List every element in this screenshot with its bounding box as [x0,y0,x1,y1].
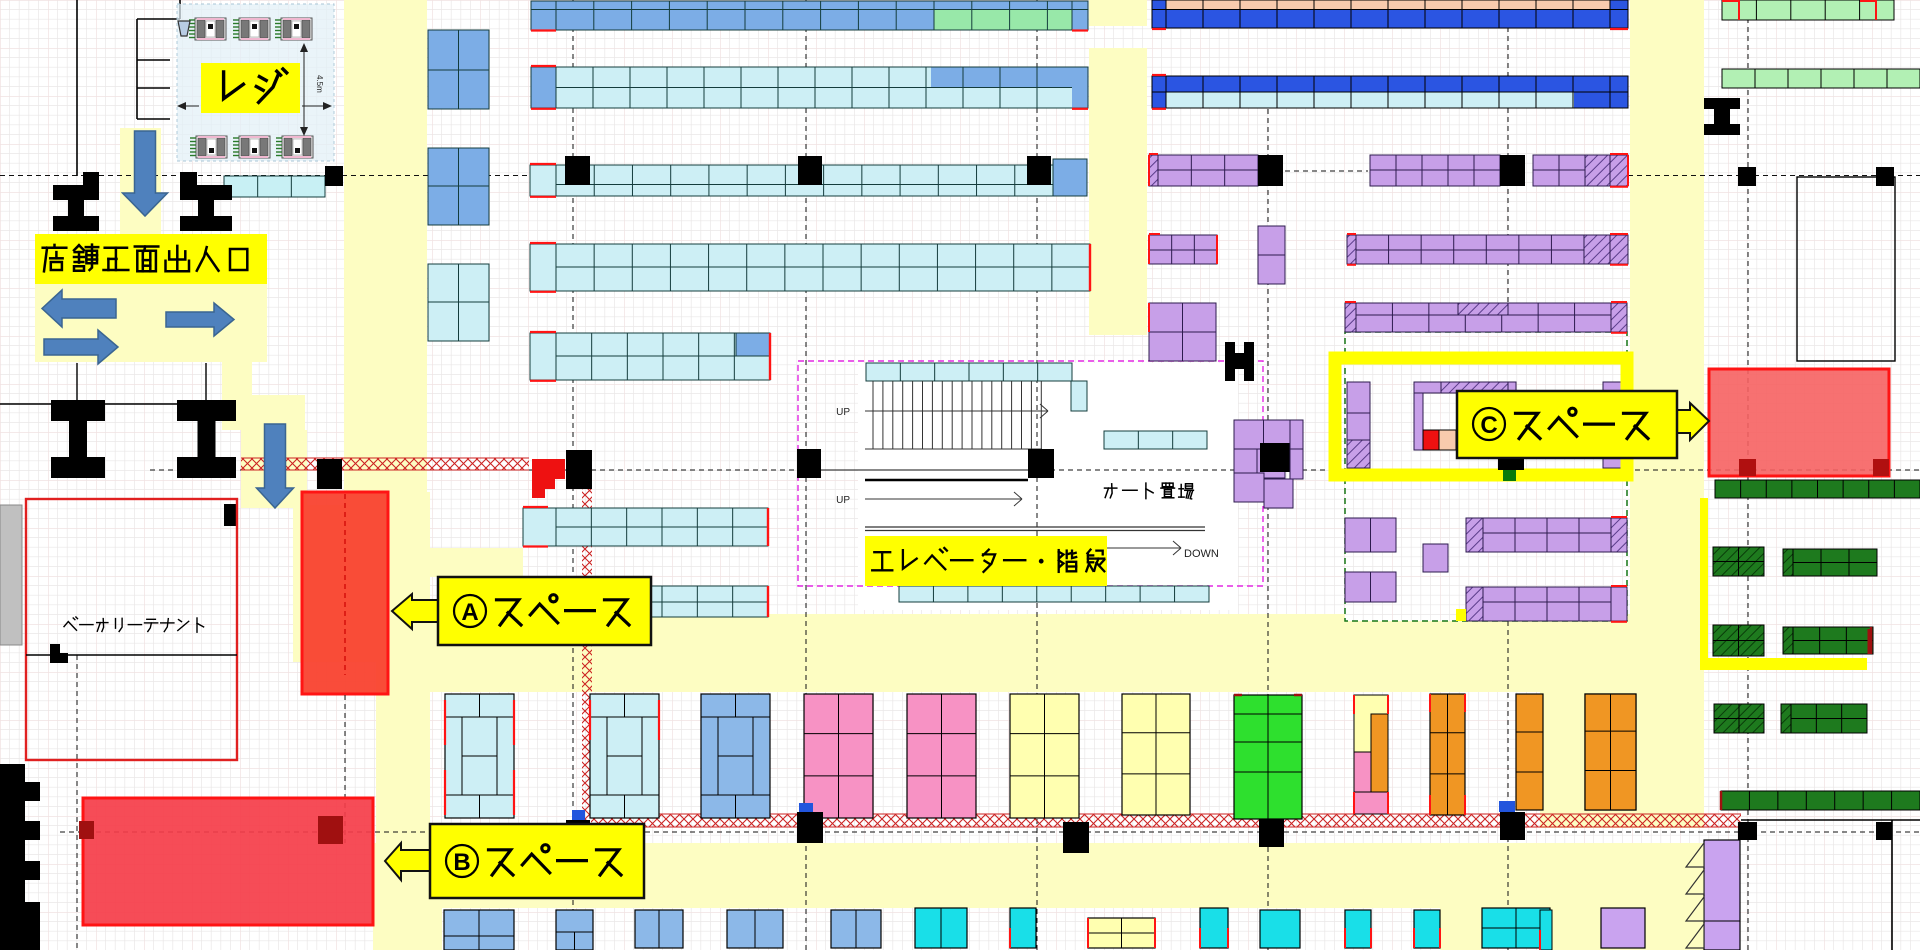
svg-text:A: A [461,599,478,626]
svg-text:C: C [1480,412,1497,439]
svg-text:B: B [453,849,470,876]
svg-text:4.5m: 4.5m [315,75,324,93]
svg-text:DOWN: DOWN [1184,548,1219,560]
svg-text:UP: UP [836,495,850,506]
svg-text:UP: UP [836,407,850,418]
